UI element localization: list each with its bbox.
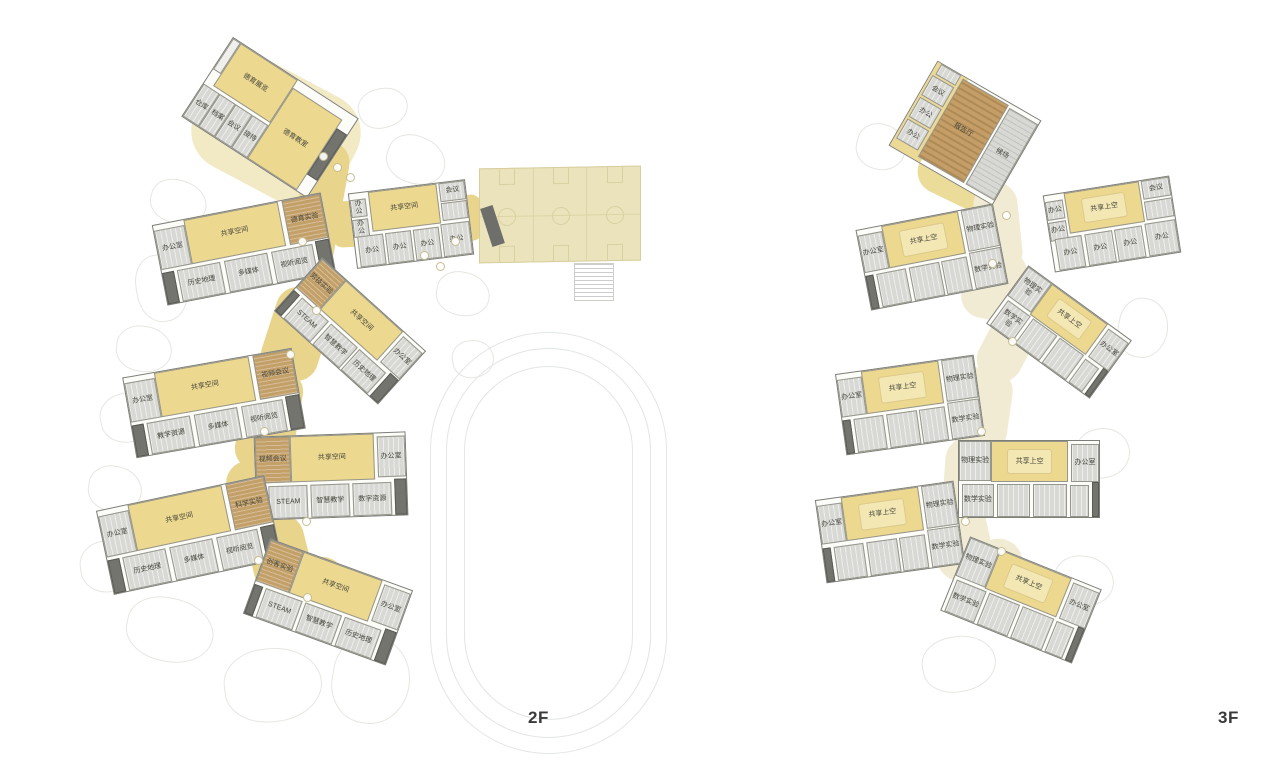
classroom <box>919 407 950 444</box>
room-label: STEAM <box>276 498 300 507</box>
room: 办公 <box>1084 230 1116 266</box>
room-label: 历史地理 <box>187 275 216 288</box>
court-key-top <box>607 167 623 183</box>
classroom <box>876 269 912 308</box>
room-label: 会议 <box>1149 183 1164 193</box>
f3-office-wing: 共享上空 会议 办公 办公 办公 办公 办公 办公 <box>1043 175 1182 272</box>
classroom <box>941 257 973 295</box>
room: 科学实验 <box>225 476 273 530</box>
room-label: 接待 <box>242 129 258 143</box>
room-label: 共享空间 <box>191 380 220 393</box>
room: 办公 <box>358 233 387 267</box>
tree-symbol <box>436 262 445 271</box>
room: 数学实验 <box>969 247 1007 289</box>
room: 办公室 <box>1071 444 1099 482</box>
basketball-terrace <box>479 166 641 264</box>
room-label: 共享空间 <box>390 202 419 213</box>
classroom <box>1144 197 1174 220</box>
f2-office-wing: 共享空间 会议 办公 办公 办公 办公 办公 办公 <box>348 179 474 269</box>
classroom <box>1033 484 1067 517</box>
room: 共享空间 <box>367 184 441 232</box>
room-label: 共享空间 <box>348 308 374 333</box>
room-label: 德育教室 <box>281 128 309 150</box>
room-label: 共享上空 <box>1016 458 1044 466</box>
room-label: 物理实验 <box>925 499 954 511</box>
tree-symbol <box>303 593 312 602</box>
room-label: 办公 <box>917 106 933 120</box>
tree-symbol <box>312 306 321 315</box>
room-label: 会议 <box>226 119 242 133</box>
tree-symbol <box>298 237 307 246</box>
court-key-bottom <box>553 245 569 261</box>
room-label: 数学实验 <box>995 307 1025 335</box>
room: 多媒体 <box>224 253 273 293</box>
room: 物理实验 <box>941 356 978 402</box>
room-label: 数字资源 <box>358 495 386 504</box>
room-label: 办公室 <box>379 600 401 615</box>
room: STEAM <box>268 485 308 519</box>
room-label: 历史地理 <box>133 563 162 576</box>
room-label: 智慧教学 <box>304 615 333 632</box>
classroom <box>1070 485 1090 517</box>
room: 数字资源 <box>352 482 392 516</box>
room-label: 历史地理 <box>351 359 377 384</box>
court-key-top <box>499 169 515 185</box>
room: 智慧教学 <box>310 484 350 518</box>
landscape-outline <box>354 82 413 134</box>
room: 会议 <box>439 180 467 201</box>
f3-auditorium-wing: 会议 办公 办公 报告厅 候场 <box>889 61 1042 206</box>
landscape-outline <box>918 630 1001 698</box>
room-label: 物理实验 <box>961 457 989 465</box>
room-label: 办公室 <box>132 394 154 405</box>
basketball-court <box>534 168 588 262</box>
room: 办公室 <box>376 436 406 478</box>
room-label: 多媒体 <box>238 267 260 279</box>
room-label: 物理实验 <box>946 373 975 385</box>
room-label: 办公 <box>1063 248 1078 258</box>
room-label: 办公室 <box>1068 598 1090 613</box>
room: 数学实验 <box>962 484 994 517</box>
classroom <box>899 534 930 572</box>
classroom <box>853 415 888 452</box>
room-label: 视听阅览 <box>250 412 279 425</box>
tree-symbol <box>977 427 986 436</box>
room-label: 科学实验 <box>235 497 264 510</box>
room-label: 候场 <box>994 147 1010 161</box>
room-label: 视听阅览 <box>225 543 254 556</box>
room-label: 共享上空 <box>909 233 938 246</box>
room-label: 智慧教学 <box>322 333 348 358</box>
tree-symbol <box>1008 337 1017 346</box>
basketball-court <box>587 167 640 261</box>
room-label: 数学实验 <box>951 592 980 610</box>
room-label: 办公 <box>420 239 435 248</box>
tree-symbol <box>319 152 328 161</box>
room: 物理实验 <box>959 441 991 481</box>
room-label: 物理实验 <box>966 221 995 234</box>
running-track-infield <box>464 366 633 720</box>
room-label: 数学实验 <box>951 413 980 425</box>
room-label: 共享上空 <box>1014 575 1043 593</box>
room-label: 会议 <box>930 85 946 99</box>
room-label: 办公 <box>1123 238 1138 248</box>
floor-plan-canvas: 德育展览 德育教室 仓库 档案 会议 接待 办公室 共享空间 德育实验 历史地理… <box>0 0 1280 762</box>
room-label: 共享上空 <box>1055 308 1082 331</box>
landscape-outline <box>113 322 175 375</box>
landscape-outline <box>120 590 219 671</box>
room-label: 共享上空 <box>868 508 897 520</box>
room-label: 创客实验 <box>265 558 294 575</box>
stair-core <box>132 424 149 458</box>
room-label: 共享空间 <box>318 454 346 463</box>
room-label: 共享空间 <box>220 226 249 239</box>
outdoor-stairs <box>574 263 614 301</box>
tree-symbol <box>346 173 355 182</box>
room-label: 办公室 <box>162 242 184 254</box>
room-label: 办公 <box>351 200 366 217</box>
room-label: 视频会议 <box>261 368 290 381</box>
floor-label-2f: 2F <box>528 708 549 728</box>
stair-core <box>394 478 407 514</box>
room-label: 办公 <box>905 128 921 142</box>
room-label: 办公室 <box>862 246 884 258</box>
room-label: 办公室 <box>1098 340 1120 359</box>
room-label: 数学实验 <box>931 541 960 553</box>
room: 共享上空 <box>841 487 925 542</box>
room-label: 办公 <box>365 246 380 255</box>
floor-label-3f: 3F <box>1218 708 1239 728</box>
room-label: 会议 <box>445 186 460 195</box>
tree-symbol <box>254 556 263 565</box>
room-label: 仓库 <box>193 98 209 112</box>
tree-symbol <box>451 237 460 246</box>
tree-symbol <box>420 251 429 260</box>
room-label: 共享上空 <box>888 382 917 394</box>
tree-symbol <box>997 547 1006 556</box>
room-label: 办公室 <box>841 392 863 403</box>
classroom <box>441 200 469 221</box>
court-key-bottom <box>499 246 515 262</box>
classroom <box>886 411 921 448</box>
room-label: 数学实验 <box>964 496 992 504</box>
room: 物理实验 <box>961 205 1000 252</box>
room: 共享上空 <box>861 361 945 415</box>
room-label: 劳技实验 <box>308 272 334 297</box>
room-label: 办公室 <box>106 528 128 540</box>
room-label: 视听阅览 <box>280 257 309 270</box>
room-label: 办公 <box>1093 243 1108 253</box>
room: 办公 <box>350 198 368 218</box>
tree-symbol <box>302 517 311 526</box>
room-label: 共享上空 <box>1090 201 1119 213</box>
room-label: 报告厅 <box>952 122 974 139</box>
room-label: 德育实验 <box>290 213 319 226</box>
room-label: 办公 <box>392 242 407 251</box>
room-label: 智慧教学 <box>316 496 344 505</box>
room-label: 档案 <box>209 108 225 122</box>
room-label: 多媒体 <box>207 421 229 432</box>
room-label: 办公室 <box>821 518 843 529</box>
court-key-top <box>553 168 569 184</box>
room-label: 教学资源 <box>157 429 186 442</box>
stair-core <box>1092 482 1099 517</box>
room-label: 物理实验 <box>964 554 993 572</box>
classroom <box>909 262 945 301</box>
tree-symbol <box>333 163 342 172</box>
court-key-bottom <box>607 244 623 260</box>
room-label: 办公室 <box>1075 459 1096 467</box>
room: 数学实验 <box>927 526 964 568</box>
room: 物理实验 <box>921 482 958 529</box>
tree-symbol <box>1002 211 1011 220</box>
room: 办公 <box>1045 200 1065 222</box>
room: 教学资源 <box>147 415 196 454</box>
room: 多媒体 <box>169 539 219 581</box>
tree-symbol <box>988 259 997 268</box>
tree-symbol <box>260 427 269 436</box>
room-label: 视频会议 <box>259 456 287 465</box>
tree-symbol <box>961 517 970 526</box>
room: 办公 <box>1144 219 1180 257</box>
room-label: 历史地理 <box>344 629 373 646</box>
room: 共享上空 <box>991 441 1068 482</box>
room: 办公 <box>1054 235 1086 271</box>
classroom <box>834 542 869 580</box>
landscape-outline <box>220 643 325 727</box>
f3-cluster-central: 物理实验 共享上空 办公室 数学实验 <box>958 440 1100 518</box>
room-label: 办公 <box>354 220 369 237</box>
room: 历史地理 <box>123 549 173 591</box>
f2-cluster-central: 视频会议 共享空间 办公室 STEAM 智慧教学 数字资源 <box>254 431 409 520</box>
tree-symbol <box>286 350 295 359</box>
room: 会议 <box>1141 177 1171 200</box>
room: 办公 <box>1114 225 1146 261</box>
room-label: 办公 <box>1154 233 1169 243</box>
room-label: 共享空间 <box>321 578 350 595</box>
room-label: 共享空间 <box>165 511 194 524</box>
room-label: STEAM <box>266 601 291 617</box>
room: 多媒体 <box>194 407 243 446</box>
landscape-outline <box>432 267 494 321</box>
room-label: 办公室 <box>391 348 412 368</box>
room-label: 办公室 <box>380 452 401 461</box>
classroom <box>997 484 1031 517</box>
room: 共享空间 <box>289 434 375 483</box>
room: 办公 <box>385 230 414 264</box>
room-label: 多媒体 <box>183 554 205 566</box>
room-label: 办公 <box>1051 226 1066 236</box>
classroom <box>866 538 901 576</box>
room: 历史地理 <box>177 262 226 302</box>
room-label: 办公 <box>1047 205 1062 215</box>
room-label: 德育展览 <box>241 72 269 94</box>
